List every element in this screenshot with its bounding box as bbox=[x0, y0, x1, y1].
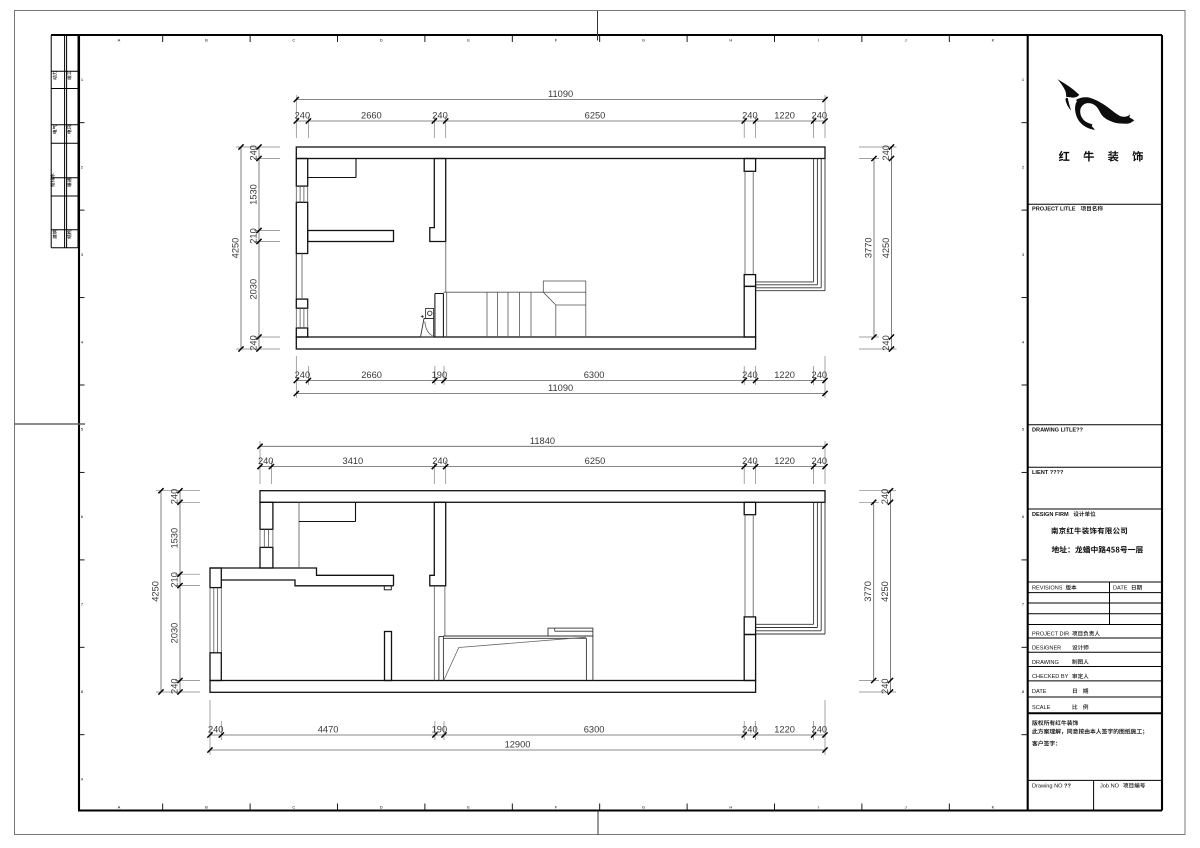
svg-text:H: H bbox=[729, 805, 732, 810]
svg-text:240: 240 bbox=[208, 725, 224, 735]
svg-text:SCALE: SCALE bbox=[1032, 705, 1051, 711]
svg-text:240: 240 bbox=[295, 111, 311, 121]
svg-text:240: 240 bbox=[432, 111, 448, 121]
svg-text:A: A bbox=[118, 805, 121, 810]
svg-text:240: 240 bbox=[812, 456, 828, 466]
svg-text:6300: 6300 bbox=[584, 725, 605, 735]
svg-text:REVISIONS: REVISIONS bbox=[1032, 586, 1063, 592]
svg-text:240: 240 bbox=[812, 111, 828, 121]
svg-text:Drawing NO ??: Drawing NO ?? bbox=[1032, 784, 1071, 790]
svg-text:11090: 11090 bbox=[548, 89, 573, 99]
svg-text:E: E bbox=[467, 805, 470, 810]
svg-text:240: 240 bbox=[881, 145, 891, 161]
svg-text:I: I bbox=[818, 38, 819, 43]
svg-text:240: 240 bbox=[881, 335, 891, 351]
svg-text:A: A bbox=[118, 38, 121, 43]
svg-text:B: B bbox=[205, 38, 208, 43]
svg-text:3770: 3770 bbox=[863, 581, 873, 602]
svg-text:6250: 6250 bbox=[585, 111, 606, 121]
svg-text:11840: 11840 bbox=[530, 436, 555, 446]
svg-text:240: 240 bbox=[880, 489, 890, 505]
svg-text:210: 210 bbox=[170, 572, 180, 588]
svg-text:G: G bbox=[642, 805, 645, 810]
svg-text:DESIGN FIRM: DESIGN FIRM bbox=[1032, 512, 1069, 518]
svg-text:240: 240 bbox=[742, 456, 758, 466]
svg-text:K: K bbox=[992, 38, 995, 43]
svg-text:210: 210 bbox=[249, 228, 259, 244]
svg-text:240: 240 bbox=[812, 725, 828, 735]
svg-text:DRAWING: DRAWING bbox=[1032, 660, 1059, 666]
svg-text:240: 240 bbox=[812, 370, 828, 380]
svg-text:3770: 3770 bbox=[864, 237, 874, 258]
svg-text:240: 240 bbox=[742, 370, 758, 380]
svg-text:J: J bbox=[905, 38, 907, 43]
svg-text:C: C bbox=[292, 38, 295, 43]
svg-text:4250: 4250 bbox=[151, 581, 161, 602]
svg-text:240: 240 bbox=[742, 725, 758, 735]
svg-text:3410: 3410 bbox=[343, 456, 364, 466]
svg-text:D: D bbox=[380, 805, 383, 810]
svg-text:PROJECT DIR: PROJECT DIR bbox=[1032, 632, 1069, 638]
svg-text:J: J bbox=[905, 805, 907, 810]
svg-text:190: 190 bbox=[432, 725, 448, 735]
svg-text:240: 240 bbox=[249, 335, 259, 351]
svg-text:PROJECT LITLE: PROJECT LITLE bbox=[1032, 207, 1076, 213]
svg-text:2030: 2030 bbox=[170, 623, 180, 644]
svg-text:Job NO: Job NO bbox=[1100, 784, 1120, 790]
svg-text:H: H bbox=[729, 38, 732, 43]
svg-text:240: 240 bbox=[880, 678, 890, 694]
svg-text:11090: 11090 bbox=[548, 383, 573, 393]
svg-text:CHECKED BY: CHECKED BY bbox=[1032, 674, 1069, 680]
svg-text:E: E bbox=[467, 38, 470, 43]
svg-text:1220: 1220 bbox=[774, 111, 795, 121]
svg-text:240: 240 bbox=[295, 370, 311, 380]
svg-text:LIENT ????: LIENT ???? bbox=[1032, 470, 1064, 476]
svg-text:2030: 2030 bbox=[249, 279, 259, 300]
svg-text:4470: 4470 bbox=[318, 725, 339, 735]
svg-text:DRAWING LITLE??: DRAWING LITLE?? bbox=[1032, 428, 1084, 434]
svg-text:DATE: DATE bbox=[1032, 689, 1047, 695]
svg-text:240: 240 bbox=[742, 111, 758, 121]
svg-text:190: 190 bbox=[432, 370, 448, 380]
svg-text:G: G bbox=[642, 38, 645, 43]
svg-text:4250: 4250 bbox=[880, 581, 890, 602]
svg-text:1220: 1220 bbox=[774, 370, 795, 380]
svg-text:B: B bbox=[205, 805, 208, 810]
svg-text:240: 240 bbox=[249, 145, 259, 161]
svg-text:K: K bbox=[992, 805, 995, 810]
svg-text:1220: 1220 bbox=[774, 456, 795, 466]
svg-text:240: 240 bbox=[258, 456, 274, 466]
svg-text:I: I bbox=[818, 805, 819, 810]
svg-text:6250: 6250 bbox=[585, 456, 606, 466]
svg-text:1220: 1220 bbox=[774, 725, 795, 735]
svg-text:DATE: DATE bbox=[1113, 586, 1128, 592]
svg-text:240: 240 bbox=[432, 456, 448, 466]
svg-text:6300: 6300 bbox=[584, 370, 605, 380]
svg-text:DESIGNER: DESIGNER bbox=[1032, 646, 1061, 652]
svg-text:2660: 2660 bbox=[361, 111, 382, 121]
svg-text:4250: 4250 bbox=[231, 238, 241, 259]
svg-text:C: C bbox=[292, 805, 295, 810]
svg-text:240: 240 bbox=[170, 489, 180, 505]
svg-text:1530: 1530 bbox=[249, 184, 259, 205]
svg-text:12900: 12900 bbox=[505, 740, 531, 750]
svg-text:1530: 1530 bbox=[170, 528, 180, 549]
svg-text:4250: 4250 bbox=[881, 238, 891, 259]
svg-text:240: 240 bbox=[170, 678, 180, 694]
svg-text:2660: 2660 bbox=[361, 370, 382, 380]
svg-text:D: D bbox=[380, 38, 383, 43]
